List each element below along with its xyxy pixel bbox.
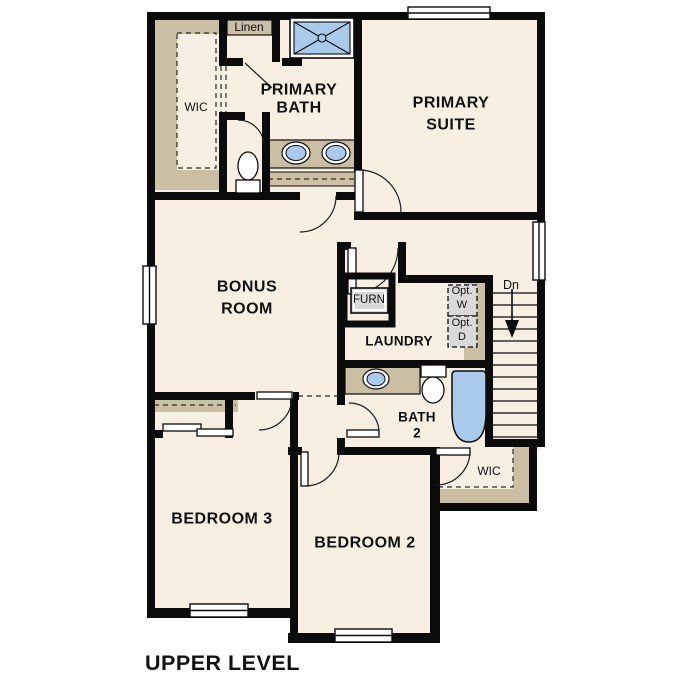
wall-wic1-right-b bbox=[219, 112, 227, 196]
wall-bath2-bottom bbox=[337, 447, 433, 455]
floorplan-drawing: Linen WIC PRIMARY BATH PRIMARY SUITE BON… bbox=[0, 0, 687, 687]
door-leaf-bedroom3 bbox=[257, 392, 292, 399]
label-primary-suite-1: PRIMARY bbox=[413, 95, 490, 112]
label-wic-primary: WIC bbox=[184, 100, 208, 114]
door-leaf-bedroom2 bbox=[301, 452, 308, 486]
vanity-sink-left bbox=[282, 142, 310, 164]
wall-nook-top bbox=[227, 112, 245, 120]
bypass-door-bedroom3-closet-a bbox=[163, 424, 201, 431]
label-opt-washer-1: Opt. bbox=[452, 285, 473, 297]
label-furnace: FURN bbox=[353, 294, 385, 306]
wall-wic2-bottom bbox=[430, 503, 537, 511]
door-leaf-bath2 bbox=[347, 430, 379, 437]
label-linen: Linen bbox=[234, 20, 263, 34]
door-leaf-laundry bbox=[348, 248, 356, 294]
bypass-door-bedroom3-closet-b bbox=[197, 429, 233, 436]
vanity-sink-right bbox=[322, 142, 350, 164]
label-opt-dryer-2: D bbox=[458, 331, 466, 343]
window-bonus-left bbox=[143, 266, 156, 324]
label-bedroom3: BEDROOM 3 bbox=[171, 511, 272, 528]
label-primary-suite-2: SUITE bbox=[426, 117, 476, 134]
door-leaf-primary-suite bbox=[355, 170, 363, 212]
wall-nook-right bbox=[262, 112, 270, 196]
label-bedroom2: BEDROOM 2 bbox=[314, 535, 415, 552]
wall-laundry-top bbox=[398, 275, 493, 283]
label-wic-bedroom2: WIC bbox=[477, 464, 501, 478]
wall-wic1-right-a bbox=[219, 12, 227, 66]
wall-suite-left bbox=[354, 12, 362, 172]
label-bonus-2: ROOM bbox=[221, 301, 273, 318]
wall-bonus-bottom bbox=[147, 392, 255, 400]
window-bedroom2 bbox=[335, 629, 392, 642]
wall-laundry-bottom bbox=[337, 360, 493, 368]
wall-linen-right bbox=[272, 12, 280, 62]
wall-bedroom3-closet-stub bbox=[147, 430, 163, 438]
bath2-sink bbox=[363, 369, 389, 389]
floorplan-page: Linen WIC PRIMARY BATH PRIMARY SUITE BON… bbox=[0, 0, 687, 687]
shower bbox=[290, 18, 354, 58]
wall-shower-stub bbox=[282, 58, 302, 66]
wic1-shelf-bottom bbox=[155, 170, 219, 190]
toilet-primary bbox=[236, 152, 260, 193]
label-stairs-dn: Dn bbox=[503, 278, 519, 292]
window-bedroom3 bbox=[190, 604, 248, 617]
label-bath2-2: 2 bbox=[413, 426, 421, 441]
label-primary-bath-1: PRIMARY bbox=[261, 82, 338, 99]
toilet-bath2 bbox=[421, 365, 446, 403]
label-laundry: LAUNDRY bbox=[365, 334, 433, 349]
wic1-shelf-top bbox=[155, 20, 219, 34]
bathtub bbox=[452, 371, 486, 442]
door-leaf-wic2 bbox=[436, 448, 470, 455]
wall-linen-stub bbox=[227, 58, 243, 66]
wall-bedroom2-right bbox=[430, 447, 440, 643]
label-opt-washer-2: W bbox=[457, 299, 468, 311]
window-primary-suite bbox=[408, 7, 490, 19]
wall-bedrooms-shared bbox=[290, 398, 298, 643]
label-bonus-1: BONUS bbox=[217, 279, 277, 296]
window-hall-right bbox=[533, 222, 545, 280]
label-bath2-1: BATH bbox=[398, 410, 436, 425]
label-opt-dryer-1: Opt. bbox=[452, 317, 473, 329]
wic2-shelf-bottom bbox=[436, 489, 529, 503]
wall-suite-bottom bbox=[354, 212, 545, 220]
wall-wic2-right bbox=[529, 439, 537, 511]
page-title: UPPER LEVEL bbox=[145, 651, 300, 675]
wall-bath1-bottom bbox=[147, 192, 300, 200]
wall-bath1-bottom-stub bbox=[336, 192, 356, 200]
wic1-shelf-left bbox=[155, 20, 177, 190]
label-primary-bath-2: BATH bbox=[276, 100, 321, 117]
